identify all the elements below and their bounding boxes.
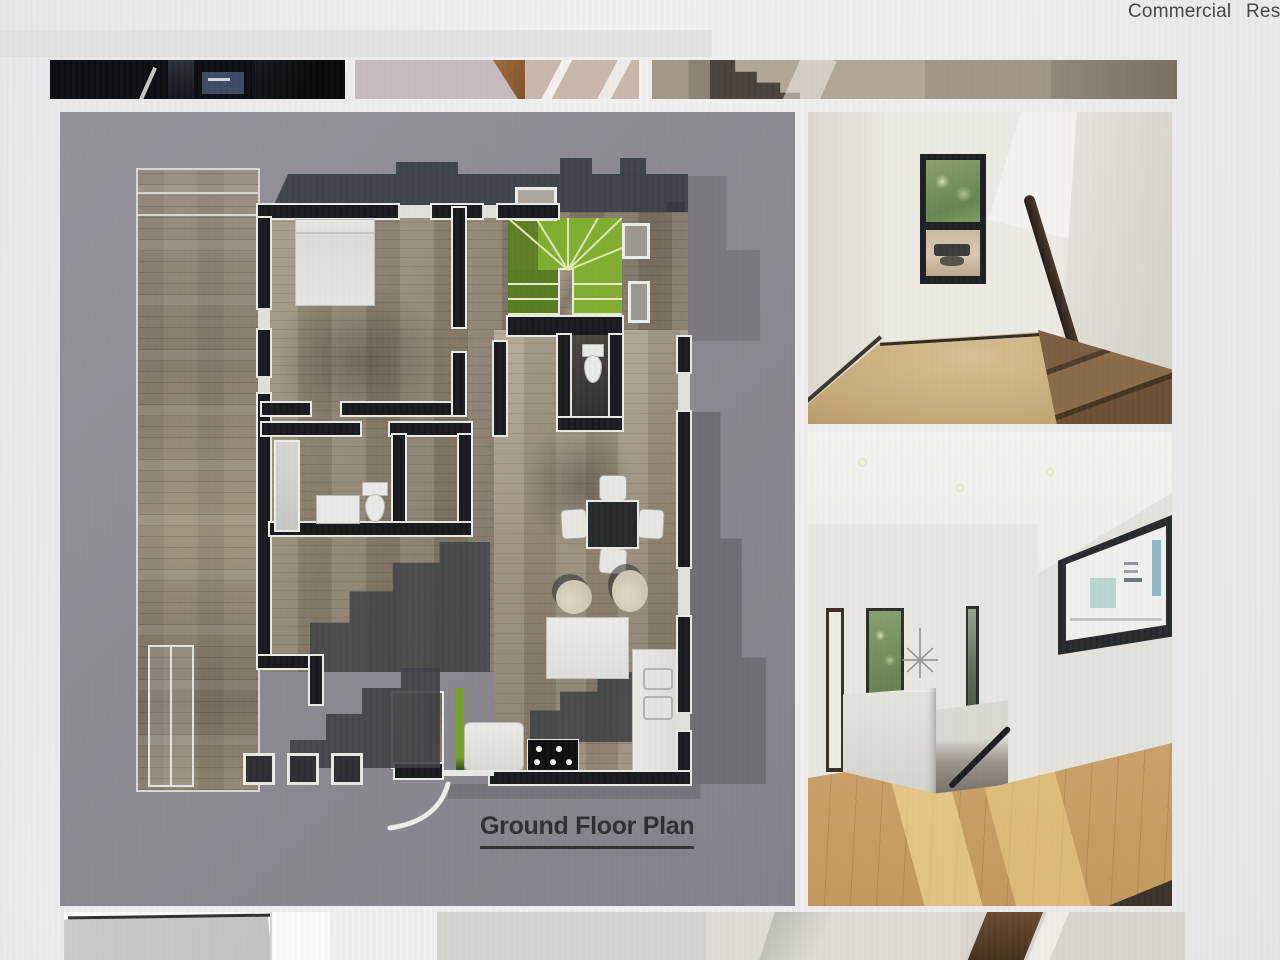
car-shape (934, 244, 970, 256)
highlight-streak (137, 67, 157, 99)
header-band (0, 30, 712, 57)
wall-shade (759, 912, 831, 960)
window-view-panel (1090, 578, 1116, 608)
thumbnail-dark-media-room[interactable] (50, 60, 345, 99)
window-sash-line (1070, 618, 1162, 621)
nav-commercial[interactable]: Commercial (1128, 1, 1231, 23)
window-view-detail (1124, 562, 1138, 565)
nav-residential[interactable]: Res (1246, 1, 1280, 23)
wall-shade (1052, 60, 1177, 99)
corner-line (270, 912, 272, 960)
floor-plan-caption: Ground Floor Plan (480, 812, 694, 849)
thumbnail-stair-stringer[interactable] (437, 912, 1185, 960)
gray-wall (64, 915, 272, 960)
logo-box (202, 72, 244, 94)
dark-shape (168, 60, 194, 99)
window-view-panel (1152, 540, 1161, 596)
thumbnail-staircase-hall[interactable] (652, 60, 1177, 99)
slit-window-glass (968, 609, 976, 717)
window-view-detail (1124, 570, 1138, 573)
thumbnail-stair-corner[interactable] (355, 60, 639, 99)
window-pane-trees (926, 160, 980, 222)
recessed-light (1046, 468, 1054, 476)
window-view-detail (1124, 578, 1142, 582)
entry-pointer-line (60, 112, 795, 906)
floor-plan-image[interactable]: Ground Floor Plan (60, 112, 795, 906)
logo-mark (208, 78, 230, 81)
recessed-light (956, 484, 964, 492)
stairwell-photo[interactable] (808, 112, 1172, 424)
hallway-photo[interactable] (808, 432, 1172, 906)
car-shape (940, 256, 964, 266)
door-leaf (829, 612, 841, 768)
light-diagonal (781, 60, 836, 99)
window-pane-street (926, 230, 980, 276)
dark-shape (255, 60, 345, 99)
thumbnail-white-interior[interactable] (64, 912, 330, 960)
recessed-light (858, 458, 867, 467)
stair-void (936, 700, 1008, 800)
sputnik-chandelier (896, 628, 944, 684)
